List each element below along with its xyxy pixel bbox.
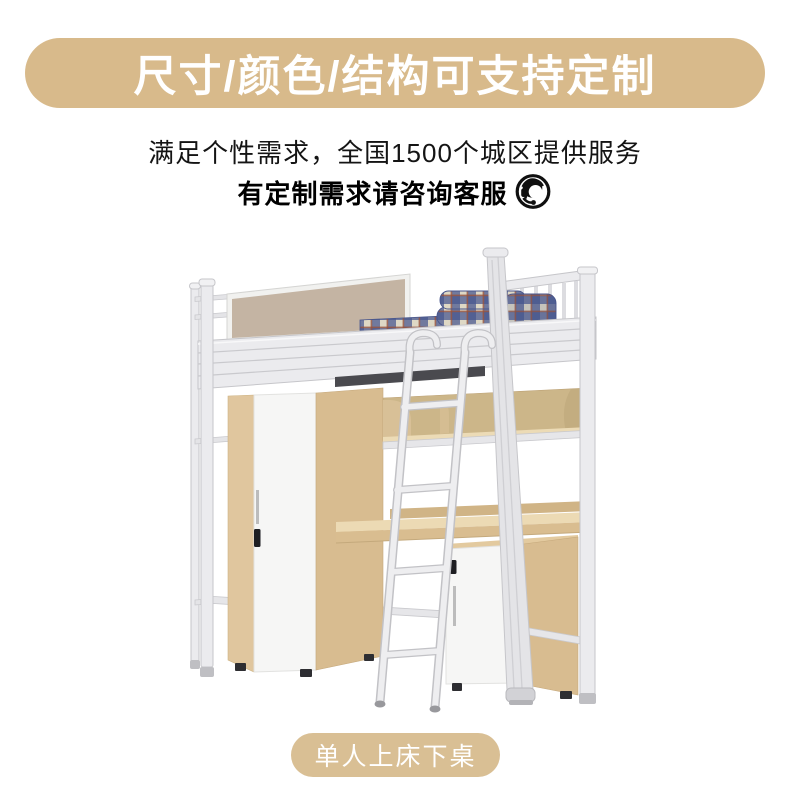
consult-text: 有定制需求请咨询客服	[237, 174, 507, 211]
banner: 尺寸/颜色/结构可支持定制	[25, 38, 765, 108]
consult-row: 有定制需求请咨询客服	[0, 170, 790, 214]
wardrobe-handle-groove	[256, 490, 259, 524]
cabinet-handle-groove	[453, 586, 456, 626]
product-figure	[140, 240, 660, 715]
loft-bed-illustration	[140, 240, 660, 715]
customer-service-icon	[513, 172, 553, 212]
product-name-badge: 单人上床下桌	[291, 733, 500, 777]
hanging-shelf	[383, 388, 592, 449]
intro-line: 满足个性需求，全国1500个城区提供服务	[0, 133, 790, 170]
product-name-label: 单人上床下桌	[314, 737, 476, 773]
page-root: { "banner": { "title": "尺寸/颜色/结构可支持定制", …	[0, 0, 790, 809]
banner-title: 尺寸/颜色/结构可支持定制	[134, 42, 657, 104]
wardrobe-handle	[254, 529, 261, 547]
